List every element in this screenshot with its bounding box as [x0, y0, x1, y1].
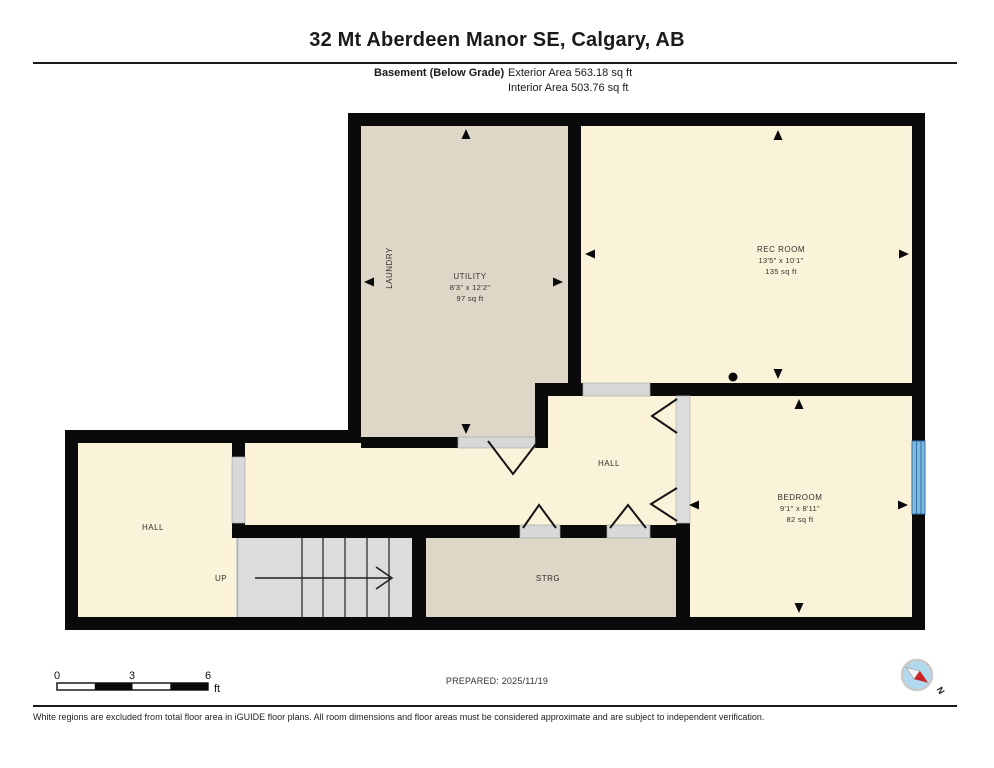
utility-room-dims: 8'3" x 12'2" [450, 283, 491, 292]
north-label: N [935, 685, 947, 696]
wall-segment [560, 525, 607, 538]
rec-room-dims: 13'5" x 10'1" [758, 256, 803, 265]
corridor-floor [238, 443, 550, 531]
door-opening-utility [458, 437, 535, 448]
wall-segment [412, 538, 426, 617]
door-opening-rec-to-hall [583, 383, 650, 396]
wall-segment [232, 525, 520, 538]
window-glass [912, 441, 925, 514]
wall-segment [912, 113, 925, 630]
storage-label: STRG [536, 574, 560, 583]
wall-segment [232, 523, 245, 538]
utility-room-area: 97 sq ft [457, 294, 485, 303]
stairs-up-label: UP [215, 574, 227, 583]
disclaimer-text: White regions are excluded from total fl… [33, 712, 963, 722]
wall-segment [676, 523, 690, 630]
hall-left-label: HALL [142, 523, 164, 532]
room-fills [72, 120, 920, 624]
floor-plan-page: 32 Mt Aberdeen Manor SE, Calgary, AB Bas… [0, 0, 994, 768]
prepared-date: PREPARED: 2025/11/19 [0, 676, 994, 686]
wall-segment [535, 383, 583, 396]
bedroom-window [912, 441, 925, 514]
wall-segment [348, 113, 361, 443]
door-opening-hall-left [232, 457, 245, 523]
bedroom-name: BEDROOM [778, 493, 823, 502]
bedroom-dims: 9'1" x 8'11" [780, 504, 820, 513]
hall-middle-label: HALL [598, 459, 620, 468]
wall-segment [650, 383, 925, 396]
wall-segment [65, 617, 925, 630]
wall-segment [65, 430, 78, 630]
wall-segment [348, 113, 925, 126]
laundry-label: LAUNDRY [385, 247, 394, 289]
wall-segment [568, 113, 581, 396]
door-opening-storage-right [607, 525, 650, 538]
rec-room-area: 135 sq ft [765, 267, 797, 276]
floor-plan: UTILITY 8'3" x 12'2" 97 sq ft LAUNDRY RE… [0, 0, 994, 768]
wall-segment [65, 430, 361, 443]
wall-segment [361, 437, 458, 448]
bedroom-area: 82 sq ft [787, 515, 815, 524]
utility-room-name: UTILITY [453, 272, 486, 281]
rec-room-floor [575, 120, 920, 396]
footer-divider [33, 705, 957, 707]
door-opening-bedroom [676, 396, 690, 523]
wall-segment [232, 443, 245, 457]
post-marker-dot [729, 373, 738, 382]
rec-room-name: REC ROOM [757, 245, 805, 254]
